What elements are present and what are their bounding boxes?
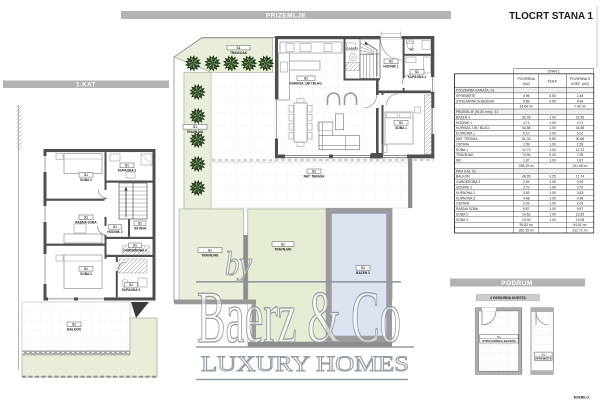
svg-text:212.71 m²: 212.71 m²: [572, 229, 588, 233]
svg-text:KUPAONA 3: KUPAONA 3: [122, 288, 141, 292]
svg-text:1.00: 1.00: [549, 180, 556, 184]
svg-text:S1: S1: [312, 170, 316, 174]
svg-text:1.00: 1.00: [549, 159, 556, 163]
svg-text:SPREMIŠTE: SPREMIŠTE: [456, 93, 476, 98]
svg-text:GARDEROBA 3: GARDEROBA 3: [456, 180, 480, 184]
svg-text:GARDEROBA 3: GARDEROBA 3: [123, 249, 147, 253]
svg-text:9.89: 9.89: [523, 99, 530, 103]
svg-text:TLOCRT STANA 1: TLOCRT STANA 1: [509, 11, 593, 22]
svg-text:2.48: 2.48: [577, 94, 584, 98]
svg-text:HODNIK 2: HODNIK 2: [456, 185, 472, 189]
svg-text:TRAVNJAK: TRAVNJAK: [456, 153, 474, 157]
svg-text:13.08: 13.08: [576, 218, 585, 222]
svg-text:61.33: 61.33: [522, 137, 531, 141]
svg-text:1.87: 1.87: [523, 159, 530, 163]
svg-text:48.95: 48.95: [522, 175, 531, 179]
svg-text:S1: S1: [415, 70, 419, 74]
svg-text:3.63: 3.63: [577, 191, 584, 195]
svg-text:4.95: 4.95: [523, 94, 530, 98]
svg-text:1.00: 1.00: [549, 185, 556, 189]
svg-text:0.50: 0.50: [549, 94, 556, 98]
svg-text:WC: WC: [456, 159, 462, 163]
svg-text:99.82 m²: 99.82 m²: [520, 223, 534, 227]
svg-text:1.00: 1.00: [549, 132, 556, 136]
svg-text:HODNIK 1: HODNIK 1: [383, 65, 398, 69]
svg-text:1.00: 1.00: [549, 148, 556, 152]
svg-text:S1: S1: [237, 46, 241, 50]
svg-text:0.40: 0.40: [549, 153, 556, 157]
svg-text:32.46: 32.46: [522, 115, 531, 119]
svg-text:NAT. TERASA: NAT. TERASA: [304, 175, 326, 179]
svg-text:PRVI KAT, S1: PRVI KAT, S1: [456, 169, 476, 173]
svg-text:KUPAONA 3: KUPAONA 3: [456, 196, 475, 200]
svg-text:0.25: 0.25: [549, 175, 556, 179]
svg-text:2.94: 2.94: [523, 180, 530, 184]
svg-text:KUHINJA, DB I BLAG.: KUHINJA, DB I BLAG.: [456, 126, 490, 130]
svg-text:3.63: 3.63: [523, 191, 530, 195]
svg-text:2.03: 2.03: [523, 202, 530, 206]
svg-text:Baerz & Co: Baerz & Co: [197, 277, 401, 359]
svg-text:(m2): (m2): [523, 82, 530, 86]
svg-text:BAZEN 3: BAZEN 3: [356, 271, 370, 275]
svg-text:1.00: 1.00: [549, 218, 556, 222]
svg-text:SOBA 2: SOBA 2: [80, 178, 92, 182]
svg-text:S1: S1: [304, 77, 308, 81]
svg-text:3.70: 3.70: [577, 185, 584, 189]
svg-text:1.00: 1.00: [549, 121, 556, 125]
svg-text:TRAVNJAK: TRAVNJAK: [201, 253, 219, 257]
svg-text:PRIZEMLJE (91,80 mnv), S1: PRIZEMLJE (91,80 mnv), S1: [456, 110, 499, 114]
svg-text:OSTAVA: OSTAVA: [456, 142, 470, 146]
svg-text:1.KAT: 1.KAT: [76, 81, 96, 88]
svg-text:LUXURY HOMES: LUXURY HOMES: [201, 351, 409, 376]
svg-text:BALKON: BALKON: [456, 175, 470, 179]
svg-text:7.42 m²: 7.42 m²: [574, 105, 586, 109]
svg-text:1.59: 1.59: [577, 142, 584, 146]
svg-text:S1: S1: [208, 248, 212, 252]
svg-text:4.94: 4.94: [577, 99, 584, 103]
svg-text:1.00: 1.00: [549, 126, 556, 130]
svg-text:1.00: 1.00: [549, 191, 556, 195]
svg-text:1.87: 1.87: [577, 159, 584, 163]
svg-text:12.72: 12.72: [522, 148, 531, 152]
svg-text:KUHINJA, DB I BLAG.: KUHINJA, DB I BLAG.: [289, 82, 322, 86]
svg-text:4.71: 4.71: [523, 121, 530, 125]
svg-text:KUPAONA 1: KUPAONA 1: [456, 132, 475, 136]
svg-text:1.00: 1.00: [549, 207, 556, 211]
svg-text:TRAVNJAK: TRAVNJAK: [230, 51, 248, 55]
svg-text:TRAVNJAK: TRAVNJAK: [186, 130, 204, 134]
svg-text:4 PARKIRNA MJESTA: 4 PARKIRNA MJESTA: [490, 296, 526, 300]
svg-text:BALKON: BALKON: [67, 328, 81, 332]
svg-text:44.58: 44.58: [576, 126, 585, 130]
svg-text:SPREMIŠTE: SPREMIŠTE: [535, 356, 552, 361]
svg-text:RADNA SOBA: RADNA SOBA: [75, 221, 97, 225]
svg-text:SOBA 1: SOBA 1: [456, 148, 468, 152]
svg-text:2.03: 2.03: [577, 202, 584, 206]
svg-text:13.00: 13.00: [522, 218, 531, 222]
svg-text:32.46: 32.46: [576, 115, 585, 119]
svg-text:POVRŠINA S: POVRŠINA S: [570, 76, 591, 81]
svg-text:S1: S1: [84, 267, 88, 271]
svg-text:STAN 1: STAN 1: [548, 70, 560, 74]
svg-text:PRIZEMLJE: PRIZEMLJE: [266, 12, 307, 19]
svg-text:1.00: 1.00: [549, 142, 556, 146]
svg-text:9.57: 9.57: [523, 207, 530, 211]
svg-text:S1: S1: [399, 121, 403, 125]
svg-text:11.74: 11.74: [576, 175, 584, 179]
svg-text:1.59: 1.59: [523, 142, 530, 146]
svg-text:4.48: 4.48: [577, 196, 584, 200]
svg-text:0.50: 0.50: [549, 99, 556, 103]
svg-text:RADNA SOBA: RADNA SOBA: [456, 207, 479, 211]
svg-text:SOBA 3: SOBA 3: [80, 272, 92, 276]
svg-text:64.61 m²: 64.61 m²: [573, 223, 587, 227]
svg-text:SOBA 3: SOBA 3: [456, 218, 468, 222]
svg-text:STROJARNICA BAZENA: STROJARNICA BAZENA: [482, 339, 517, 343]
svg-text:TRAVNJAK: TRAVNJAK: [274, 247, 292, 251]
svg-text:14.52: 14.52: [522, 212, 531, 216]
svg-text:OSTAVA: OSTAVA: [134, 227, 147, 231]
svg-text:S1: S1: [193, 125, 197, 129]
svg-text:44.58: 44.58: [522, 126, 531, 130]
svg-text:OSTAVA: OSTAVA: [456, 202, 470, 206]
svg-text:S1: S1: [125, 164, 129, 168]
svg-text:S1: S1: [389, 60, 393, 64]
svg-text:2.94: 2.94: [577, 180, 584, 184]
svg-text:4.71: 4.71: [577, 121, 584, 125]
svg-text:238.29 m²: 238.29 m²: [519, 164, 535, 168]
svg-text:PODRUM: PODRUM: [501, 280, 532, 287]
svg-text:HODNIK 1: HODNIK 1: [456, 121, 472, 125]
svg-text:S1: S1: [72, 323, 76, 327]
svg-text:14.84 m²: 14.84 m²: [520, 105, 534, 109]
svg-text:SOBA 2: SOBA 2: [456, 212, 468, 216]
svg-text:S1: S1: [133, 244, 137, 248]
svg-text:9.57: 9.57: [577, 207, 584, 211]
svg-text:S1: S1: [361, 266, 365, 270]
svg-text:7.39: 7.39: [577, 153, 584, 157]
svg-text:13.52: 13.52: [576, 212, 585, 216]
svg-text:WC: WC: [410, 48, 416, 52]
svg-text:0.50: 0.50: [549, 137, 556, 141]
svg-text:1.00: 1.00: [549, 202, 556, 206]
svg-text:3.70: 3.70: [523, 185, 530, 189]
svg-text:5.10: 5.10: [523, 132, 530, 136]
svg-text:73.94: 73.94: [522, 153, 531, 157]
svg-text:4.48: 4.48: [523, 196, 530, 200]
svg-text:1.00: 1.00: [549, 115, 556, 119]
svg-text:S1: S1: [138, 222, 142, 226]
svg-text:PODZEMNA GARAŽA, S1: PODZEMNA GARAŽA, S1: [456, 87, 495, 92]
svg-text:BAZEN 3: BAZEN 3: [456, 115, 470, 119]
svg-text:12.72: 12.72: [576, 148, 585, 152]
svg-text:KUPAONA 2: KUPAONA 2: [118, 169, 137, 173]
svg-text:KOEF.: KOEF.: [548, 79, 558, 83]
svg-text:1.00: 1.00: [549, 212, 556, 216]
svg-text:S1: S1: [281, 242, 285, 246]
svg-text:SOBA 1: SOBA 1: [395, 126, 407, 130]
svg-text:S1: S1: [84, 173, 88, 177]
svg-text:30.66: 30.66: [576, 137, 585, 141]
svg-text:HODNIK 2: HODNIK 2: [107, 230, 122, 234]
svg-text:S1: S1: [84, 216, 88, 220]
svg-text:1.00: 1.00: [549, 196, 556, 200]
svg-text:POVRŠINA: POVRŠINA: [517, 76, 535, 81]
svg-text:141.08 m²: 141.08 m²: [572, 164, 588, 168]
svg-text:5.10: 5.10: [577, 132, 584, 136]
svg-text:S1: S1: [113, 225, 117, 229]
svg-text:GARAŽA: GARAŽA: [347, 46, 359, 51]
svg-text:KOEF. (m2): KOEF. (m2): [571, 82, 589, 86]
svg-text:STROJARNICA BAZENA: STROJARNICA BAZENA: [456, 99, 495, 103]
svg-text:MJERILO:: MJERILO:: [574, 396, 590, 400]
svg-text:KUPAONA 2: KUPAONA 2: [456, 191, 475, 195]
svg-text:KUPAONA 1: KUPAONA 1: [408, 75, 427, 79]
svg-text:NAT. TERASA: NAT. TERASA: [456, 137, 478, 141]
svg-text:S1: S1: [129, 283, 133, 287]
svg-text:352.15 m²: 352.15 m²: [519, 229, 535, 233]
